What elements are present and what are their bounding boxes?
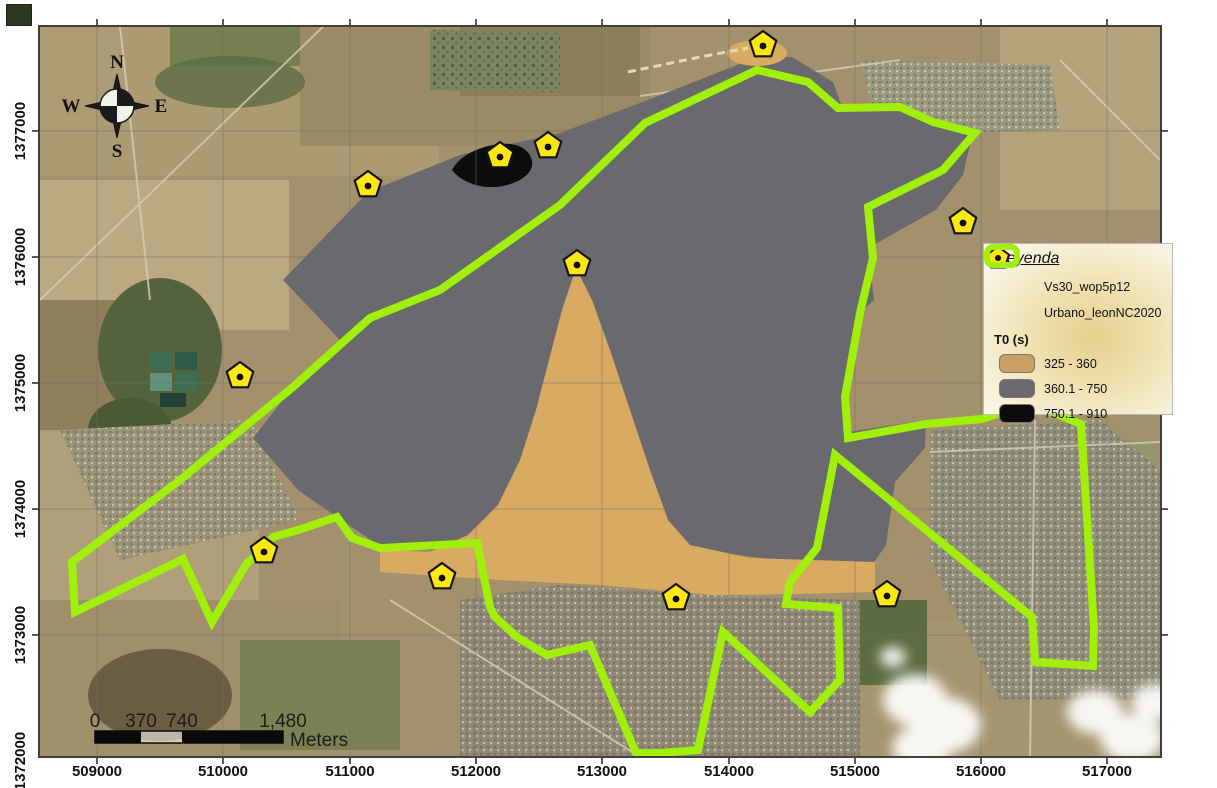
compass-e-label: E xyxy=(155,96,168,117)
legend-class-label: 750.1 - 910 xyxy=(1036,407,1107,421)
legend-item-label: Vs30_wop5p12 xyxy=(1036,280,1130,294)
x-axis-label: 511000 xyxy=(305,763,395,780)
x-axis-label: 513000 xyxy=(557,763,647,780)
legend-item-vs30: Vs30_wop5p12 xyxy=(998,274,1172,300)
y-axis-label: 1376000 xyxy=(12,212,28,302)
legend-title: Leyenda xyxy=(998,250,1172,268)
y-axis-label: 1374000 xyxy=(12,464,28,554)
map-layout-page: N S W E 0 370 740 1,480 Meters 509000 51… xyxy=(0,0,1217,788)
x-axis-label: 514000 xyxy=(684,763,774,780)
x-axis-label: 516000 xyxy=(936,763,1026,780)
legend-class-row: 360.1 - 750 xyxy=(998,376,1172,401)
compass-w-label: W xyxy=(62,96,81,117)
legend-item-label: Urbano_leonNC2020 xyxy=(1036,306,1161,320)
y-axis-label: 1373000 xyxy=(12,590,28,680)
x-axis-label: 510000 xyxy=(178,763,268,780)
compass-n-label: N xyxy=(110,52,124,73)
y-axis-label: 1377000 xyxy=(12,86,28,176)
class-swatch-tan xyxy=(999,354,1035,373)
scale-label-1480: 1,480 xyxy=(259,711,307,732)
compass-s-label: S xyxy=(112,141,123,162)
scale-unit-label: Meters xyxy=(290,730,348,751)
legend-item-urbano: Urbano_leonNC2020 xyxy=(998,300,1172,326)
scale-label-0: 0 xyxy=(90,711,101,732)
x-axis-label: 512000 xyxy=(431,763,521,780)
legend-class-label: 360.1 - 750 xyxy=(1036,382,1107,396)
x-axis-label: 515000 xyxy=(810,763,900,780)
scale-label-740: 740 xyxy=(166,711,198,732)
class-swatch-gray xyxy=(999,379,1035,398)
legend-section-title: T0 (s) xyxy=(994,332,1172,347)
legend-class-row: 325 - 360 xyxy=(998,351,1172,376)
y-axis-label: 1375000 xyxy=(12,338,28,428)
x-axis-label: 517000 xyxy=(1062,763,1152,780)
legend-class-row: 750.1 - 910 xyxy=(998,401,1172,426)
y-axis-label: 1372000 xyxy=(12,716,28,788)
legend: Leyenda Vs30_wop5p12 Urbano_leonNC2020 T… xyxy=(983,243,1173,415)
legend-class-label: 325 - 360 xyxy=(1036,357,1097,371)
x-axis-label: 509000 xyxy=(52,763,142,780)
class-swatch-black xyxy=(999,404,1035,423)
scale-label-370: 370 xyxy=(125,711,157,732)
